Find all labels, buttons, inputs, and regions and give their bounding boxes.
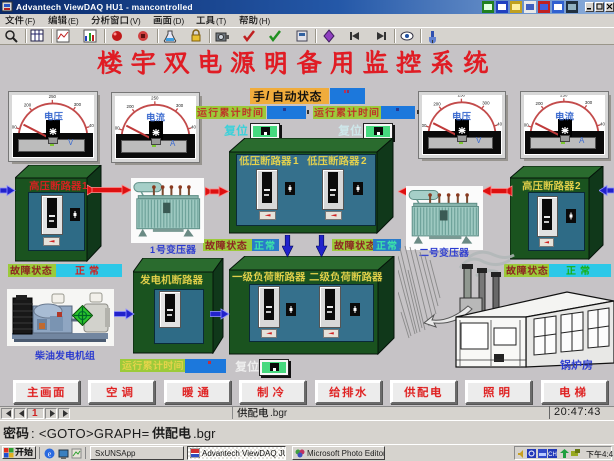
svg-text:CH: CH (548, 452, 557, 458)
svg-text:e: e (48, 450, 52, 459)
